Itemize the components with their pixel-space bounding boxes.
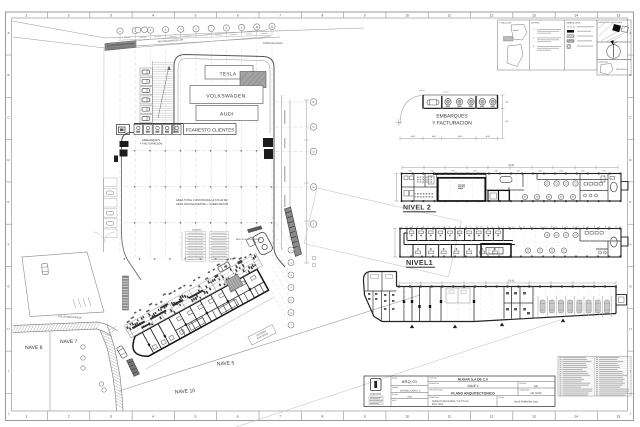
svg-text:7.98: 7.98	[559, 170, 563, 173]
svg-text:7.9: 7.9	[501, 226, 503, 229]
svg-text:A: A	[7, 31, 9, 35]
svg-text:5: 5	[195, 415, 197, 419]
svg-text:7.98: 7.98	[581, 170, 585, 173]
svg-text:D: D	[313, 151, 315, 154]
svg-text:F: F	[8, 242, 10, 246]
svg-text:NOTAS: NOTAS	[532, 22, 540, 25]
svg-text:CLIENTE: CLIENTE	[430, 377, 438, 380]
svg-text:7.98: 7.98	[473, 170, 477, 173]
svg-text:7.98: 7.98	[494, 170, 498, 173]
svg-text:SIMBOLOGIA: SIMBOLOGIA	[567, 22, 581, 25]
svg-text:PLANO: PLANO	[392, 393, 398, 396]
svg-text:7.98: 7.98	[451, 170, 455, 173]
svg-text:12: 12	[490, 13, 494, 17]
svg-text:NAVE 7: NAVE 7	[60, 339, 78, 345]
svg-text:AUDI: AUDI	[220, 112, 234, 118]
svg-text:E: E	[629, 200, 631, 204]
svg-text:PLANO ARQUITECTONICO: PLANO ARQUITECTONICO	[451, 391, 495, 395]
svg-text:AREA OFICINAS BATNE + SUBESTA: AREA OFICINAS BATNE + SUBESTACION	[176, 203, 228, 206]
svg-text:7.9: 7.9	[491, 226, 493, 229]
svg-text:UBICACION: UBICACION	[599, 61, 609, 64]
svg-text:15: 15	[617, 415, 621, 419]
svg-text:C: C	[313, 126, 315, 129]
svg-text:DIBUJO: DIBUJO	[392, 386, 399, 389]
svg-text:E: E	[7, 200, 9, 204]
svg-text:9: 9	[364, 415, 366, 419]
svg-text:2: 2	[68, 415, 70, 419]
svg-text:8: 8	[322, 13, 324, 17]
svg-text:13: 13	[532, 13, 536, 17]
svg-text:7.9: 7.9	[619, 226, 621, 229]
svg-text:Y FACTURACION: Y FACTURACION	[432, 121, 472, 127]
svg-text:13: 13	[532, 415, 536, 419]
svg-text:7.9: 7.9	[512, 226, 514, 229]
svg-text:2: 2	[68, 13, 70, 17]
svg-text:VOLKSWAGEN: VOLKSWAGEN	[206, 94, 245, 100]
svg-text:7.98: 7.98	[602, 170, 606, 173]
svg-text:3: 3	[110, 13, 112, 17]
svg-text:7.9: 7.9	[426, 226, 428, 229]
svg-text:PLAN LLAVE: PLAN LLAVE	[500, 22, 513, 25]
svg-text:SERGIO CANTU V.: SERGIO CANTU V.	[400, 390, 421, 393]
svg-text:1: 1	[26, 13, 28, 17]
svg-text:7.9: 7.9	[566, 226, 568, 229]
svg-text:EDO. MEX: EDO. MEX	[432, 403, 444, 406]
svg-text:CROQUIS DE LOCALIZACION: CROQUIS DE LOCALIZACION	[599, 21, 623, 24]
svg-text:7.9: 7.9	[544, 226, 546, 229]
svg-text:Y FACTURACION: Y FACTURACION	[140, 142, 163, 146]
svg-text:TIPO DE PLANO: TIPO DE PLANO	[430, 389, 444, 392]
svg-text:NAVE 1: NAVE 1	[467, 384, 478, 388]
svg-text:TESLA: TESLA	[220, 72, 237, 77]
svg-text:7.9: 7.9	[416, 226, 418, 229]
svg-text:7.9: 7.9	[469, 226, 471, 229]
svg-text:NAVE 8: NAVE 8	[25, 345, 43, 351]
svg-text:7.9: 7.9	[448, 226, 450, 229]
svg-text:6: 6	[237, 13, 239, 17]
svg-text:CLAVE: CLAVE	[392, 377, 398, 380]
svg-text:7.9: 7.9	[437, 226, 439, 229]
svg-text:7.9: 7.9	[459, 226, 461, 229]
svg-text:7.9: 7.9	[576, 226, 578, 229]
svg-text:DIRECCION: DIRECCION	[430, 396, 440, 399]
svg-text:14: 14	[574, 13, 578, 17]
svg-text:9: 9	[364, 13, 366, 17]
svg-text:F: F	[630, 242, 632, 246]
svg-text:4/26: 4/26	[407, 396, 412, 399]
svg-text:FECHA: FECHA	[499, 396, 506, 399]
svg-text:4: 4	[152, 13, 154, 17]
svg-text:10: 10	[405, 415, 409, 419]
svg-text:4: 4	[152, 415, 154, 419]
svg-text:15: 15	[617, 13, 621, 17]
svg-text:7.98: 7.98	[408, 170, 412, 173]
svg-text:7.9: 7.9	[523, 226, 525, 229]
svg-text:7.98: 7.98	[430, 170, 434, 173]
svg-text:EMBARQUES: EMBARQUES	[436, 114, 468, 120]
svg-text:7.9: 7.9	[555, 226, 557, 229]
svg-text:7.9: 7.9	[405, 226, 407, 229]
svg-text:14: 14	[574, 415, 578, 419]
svg-text:H: H	[629, 327, 631, 331]
svg-text:ACOTACION: ACOTACION	[520, 389, 531, 392]
svg-text:78.82: 78.82	[508, 280, 515, 283]
svg-text:7.9: 7.9	[480, 226, 482, 229]
svg-text:7.9: 7.9	[587, 226, 589, 229]
svg-text:arquitectos: arquitectos	[370, 392, 382, 395]
svg-text:7.9: 7.9	[608, 226, 610, 229]
svg-text:NIVEL 2: NIVEL 2	[403, 205, 431, 212]
svg-text:11: 11	[448, 415, 452, 419]
svg-text:S/E: S/E	[534, 385, 538, 388]
svg-text:ESCALA: ESCALA	[520, 382, 528, 385]
svg-text:11: 11	[448, 13, 452, 17]
svg-text:CUADRO: CUADRO	[192, 229, 202, 232]
svg-text:NAVE 5: NAVE 5	[217, 360, 235, 367]
svg-text:12: 12	[490, 415, 494, 419]
svg-text:78.87: 78.87	[508, 164, 515, 167]
svg-text:POZO DE AGUA: POZO DE AGUA	[263, 42, 283, 45]
svg-text:7.98: 7.98	[516, 170, 520, 173]
svg-text:METROS: METROS	[530, 392, 541, 395]
svg-text:B: B	[7, 73, 9, 77]
svg-text:1: 1	[26, 415, 28, 419]
svg-text:PROYECTO: PROYECTO	[430, 382, 440, 385]
svg-text:3: 3	[110, 415, 112, 419]
svg-text:NUGAR S.A DE C.V: NUGAR S.A DE C.V	[458, 378, 489, 382]
svg-text:NAVE 1: NAVE 1	[513, 29, 519, 32]
svg-text:E: E	[313, 186, 315, 189]
svg-text:PARQUE INDUSTRIAL TULTITLAN: PARQUE INDUSTRIAL TULTITLAN	[432, 400, 469, 403]
svg-text:7.9: 7.9	[533, 226, 535, 229]
svg-text:8: 8	[322, 415, 324, 419]
svg-text:AREA TOTAL CONSTRUIDA 14,570.: AREA TOTAL CONSTRUIDA 14,570.46 M2	[176, 199, 228, 202]
svg-text:10: 10	[405, 13, 409, 17]
svg-text:28 DE FEBRERO 2004: 28 DE FEBRERO 2004	[514, 401, 539, 404]
svg-text:7: 7	[279, 13, 281, 17]
svg-text:6: 6	[237, 415, 239, 419]
svg-text:FCARESTO CLIENTES: FCARESTO CLIENTES	[186, 128, 235, 133]
svg-text:SIN ESCALA: SIN ESCALA	[616, 68, 628, 71]
svg-text:7.98: 7.98	[538, 170, 542, 173]
svg-text:NIVEL1: NIVEL1	[406, 258, 433, 267]
svg-text:ARQ-01: ARQ-01	[402, 379, 418, 384]
svg-text:H: H	[7, 327, 9, 331]
svg-text:B: B	[313, 101, 315, 104]
svg-text:5: 5	[195, 13, 197, 17]
svg-text:7.9: 7.9	[598, 226, 600, 229]
svg-text:7: 7	[279, 415, 281, 419]
